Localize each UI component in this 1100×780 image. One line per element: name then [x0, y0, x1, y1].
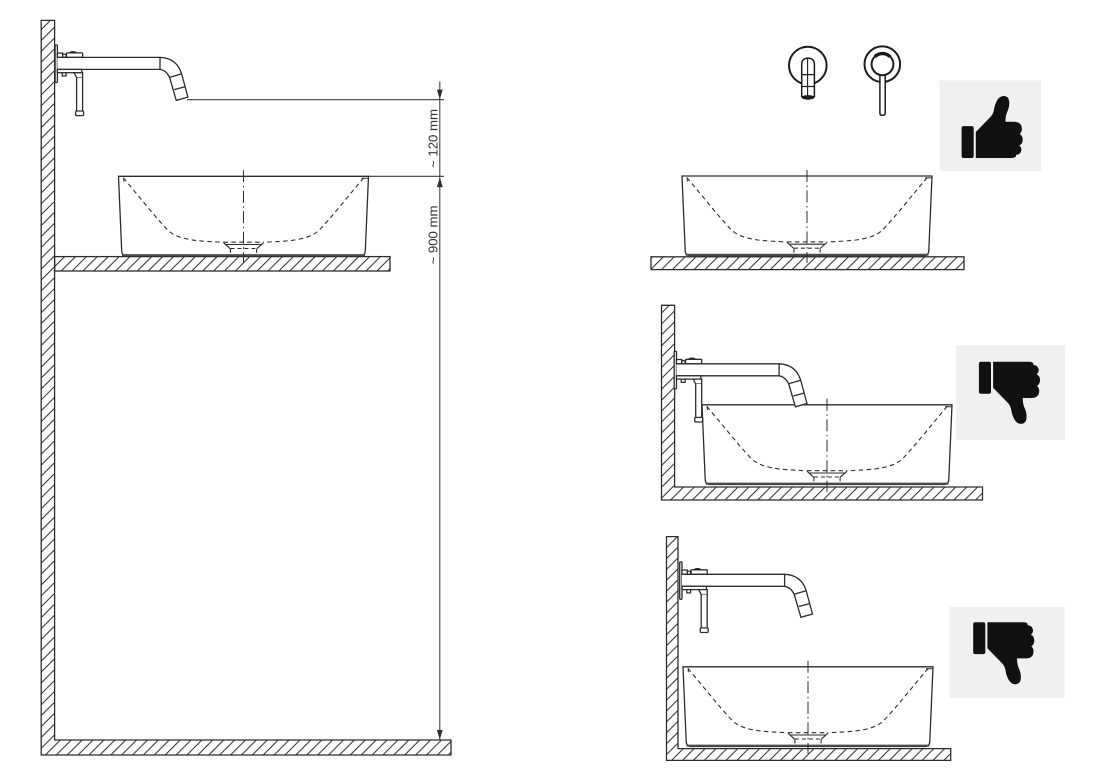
svg-text:~ 120 mm: ~ 120 mm — [425, 109, 440, 168]
svg-text:~ 900 mm: ~ 900 mm — [425, 205, 440, 264]
